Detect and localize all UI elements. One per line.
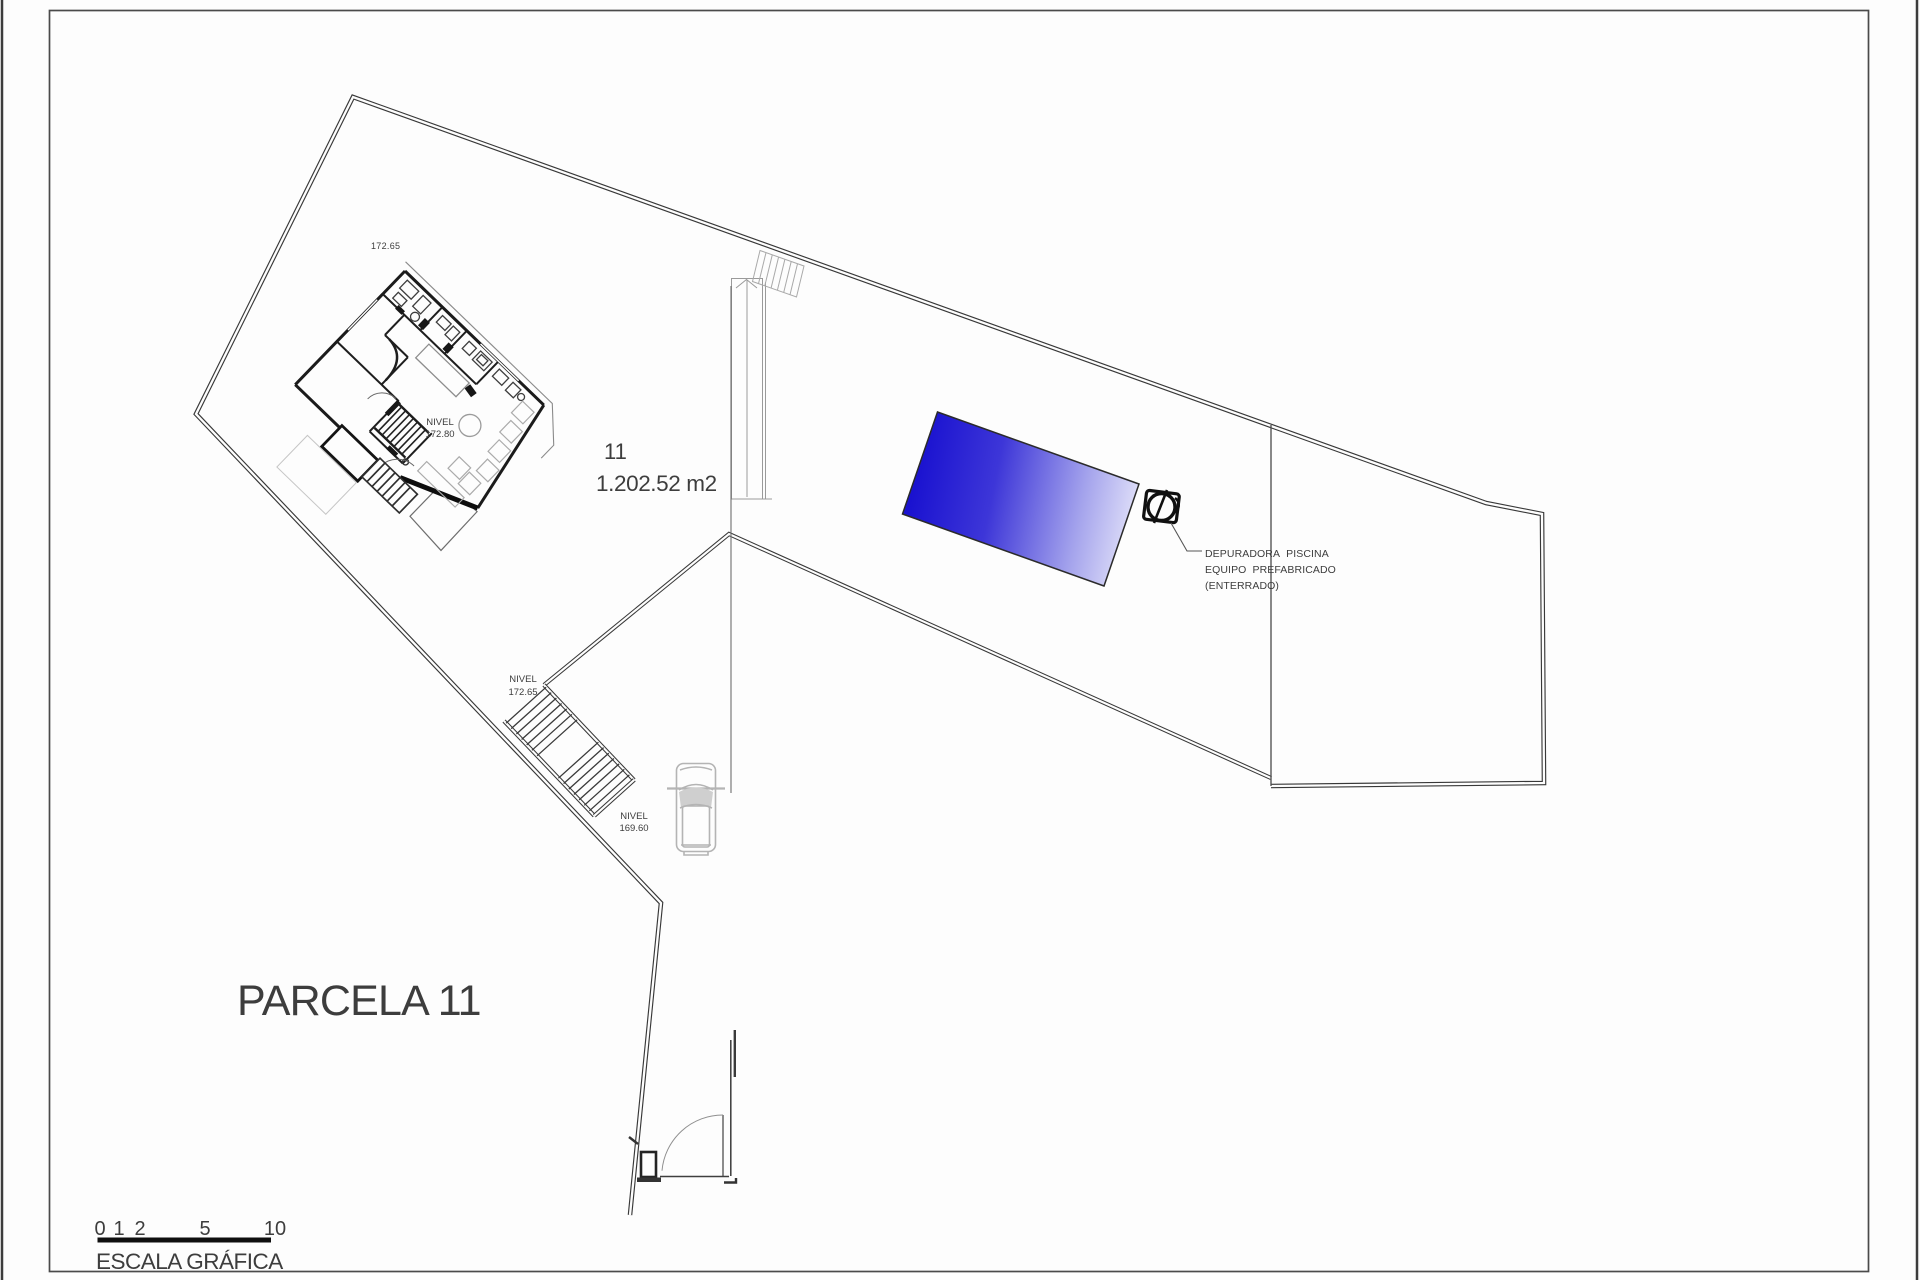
svg-text:DEPURADORA PISCINA: DEPURADORA PISCINA — [1205, 548, 1329, 560]
svg-text:10: 10 — [264, 1218, 286, 1240]
svg-text:0: 0 — [94, 1218, 105, 1240]
svg-text:172.80: 172.80 — [425, 429, 454, 440]
svg-text:NIVEL: NIVEL — [620, 811, 647, 822]
svg-text:EQUIPO PREFABRICADO: EQUIPO PREFABRICADO — [1205, 564, 1336, 576]
svg-text:2: 2 — [134, 1218, 145, 1240]
svg-text:NIVEL: NIVEL — [426, 417, 453, 428]
svg-text:1.202.52 m2: 1.202.52 m2 — [596, 471, 717, 496]
svg-text:11: 11 — [604, 439, 627, 464]
svg-text:NIVEL: NIVEL — [509, 674, 536, 685]
svg-text:PARCELA 11: PARCELA 11 — [237, 977, 481, 1025]
svg-text:1: 1 — [113, 1218, 124, 1240]
svg-text:ESCALA GRÁFICA: ESCALA GRÁFICA — [96, 1249, 283, 1274]
svg-text:172.65: 172.65 — [508, 687, 537, 698]
svg-text:5: 5 — [199, 1218, 210, 1240]
svg-text:169.60: 169.60 — [619, 823, 648, 834]
svg-text:172.65: 172.65 — [371, 241, 400, 251]
svg-text:(ENTERRADO): (ENTERRADO) — [1205, 580, 1279, 592]
